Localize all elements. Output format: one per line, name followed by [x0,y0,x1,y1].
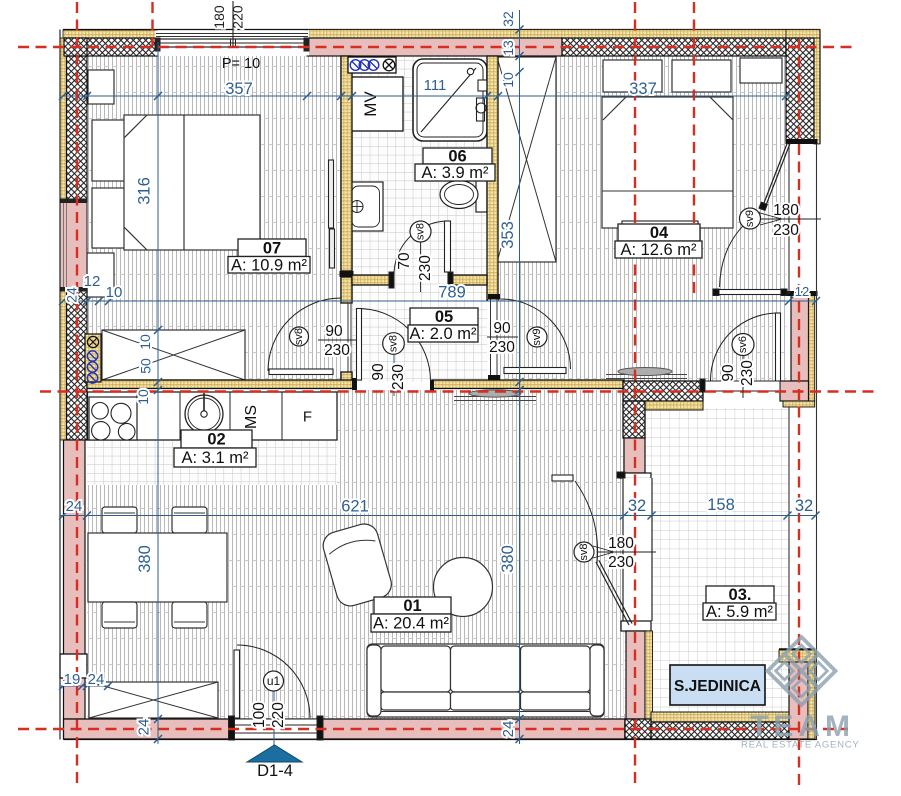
svg-text:19: 19 [64,671,81,688]
svg-text:380: 380 [136,545,154,573]
svg-text:05: 05 [435,308,453,326]
svg-text:90: 90 [325,323,343,340]
svg-text:sv9: sv9 [531,328,543,345]
svg-text:789: 789 [438,284,466,302]
svg-text:621: 621 [341,498,369,516]
svg-text:230: 230 [773,222,799,239]
svg-text:230: 230 [417,255,434,281]
svg-text:70: 70 [396,252,413,270]
svg-text:32: 32 [500,11,516,27]
svg-text:TEAM: TEAM [750,710,855,743]
svg-text:90: 90 [493,320,511,337]
svg-text:u1: u1 [267,674,281,688]
svg-text:06: 06 [448,148,466,166]
svg-text:A: 10.9 m²: A: 10.9 m² [231,256,308,274]
svg-text:24: 24 [66,498,83,515]
svg-text:A: 5.9 m²: A: 5.9 m² [706,603,773,621]
svg-text:90: 90 [720,364,737,382]
svg-text:100: 100 [251,702,268,728]
svg-text:180: 180 [608,535,634,552]
svg-text:10: 10 [106,284,123,301]
svg-text:180: 180 [211,5,227,29]
svg-text:MV: MV [361,91,380,117]
svg-text:03.: 03. [729,586,752,604]
svg-text:sv8: sv8 [293,328,305,345]
svg-text:10: 10 [500,72,516,88]
svg-text:sv8: sv8 [415,223,427,240]
svg-text:337: 337 [629,80,657,98]
svg-text:A: 20.4 m²: A: 20.4 m² [373,615,450,633]
svg-text:158: 158 [707,496,735,514]
svg-text:F: F [303,409,312,426]
svg-text:A: 3.1 m²: A: 3.1 m² [182,449,249,467]
svg-text:D1-4: D1-4 [257,762,293,780]
svg-text:24: 24 [64,287,80,303]
svg-text:380: 380 [499,545,517,573]
svg-text:10: 10 [135,389,151,405]
svg-text:316: 316 [136,177,154,205]
svg-text:50: 50 [138,358,154,374]
svg-text:111: 111 [424,77,447,94]
svg-text:10: 10 [137,334,153,350]
svg-text:220: 220 [230,5,246,29]
svg-text:A: 12.6 m²: A: 12.6 m² [620,241,697,259]
svg-text:sv8: sv8 [388,335,400,352]
svg-text:sv8: sv8 [578,543,590,560]
svg-text:220: 220 [270,702,287,728]
svg-text:32: 32 [795,497,813,515]
svg-text:24: 24 [88,671,105,688]
svg-text:357: 357 [225,80,253,98]
svg-text:sv6: sv6 [737,336,749,353]
svg-text:sv9: sv9 [744,210,756,227]
svg-text:12: 12 [84,273,101,290]
svg-text:230: 230 [608,554,634,571]
svg-text:13: 13 [500,40,516,56]
svg-text:230: 230 [390,364,407,390]
svg-text:24: 24 [500,721,517,738]
svg-text:12: 12 [795,284,809,299]
svg-text:90: 90 [370,363,387,381]
svg-text:04: 04 [650,224,669,242]
svg-text:353: 353 [499,221,517,249]
svg-text:230: 230 [489,339,515,356]
svg-text:S.JEDINICA: S.JEDINICA [674,678,761,695]
svg-text:230: 230 [739,360,756,386]
svg-text:32: 32 [628,497,646,515]
svg-text:A: 2.0 m²: A: 2.0 m² [410,325,477,343]
svg-text:02: 02 [207,431,225,449]
svg-text:180: 180 [773,202,799,219]
svg-text:24: 24 [136,719,153,736]
svg-text:01: 01 [403,597,421,615]
svg-text:REAL ESTATE AGENCY: REAL ESTATE AGENCY [741,740,860,751]
svg-text:230: 230 [324,342,350,359]
svg-text:A: 3.9 m²: A: 3.9 m² [422,164,489,182]
svg-text:MS: MS [243,405,260,429]
svg-text:P= 10: P= 10 [222,56,260,72]
svg-text:07: 07 [263,239,281,257]
